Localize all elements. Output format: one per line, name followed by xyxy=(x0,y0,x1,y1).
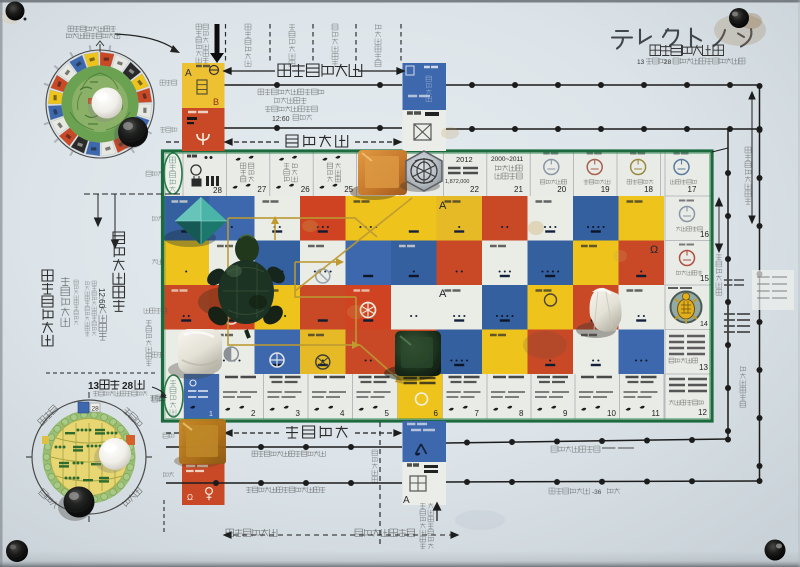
svg-text:2012: 2012 xyxy=(456,155,473,164)
svg-text:13: 13 xyxy=(699,363,708,372)
svg-text:Ω: Ω xyxy=(187,493,193,502)
svg-text:26: 26 xyxy=(301,185,310,194)
svg-text:2000~2011: 2000~2011 xyxy=(491,156,524,163)
svg-text:5: 5 xyxy=(385,409,390,418)
svg-text:A: A xyxy=(185,68,192,79)
svg-text:21: 21 xyxy=(514,185,523,194)
svg-text:15: 15 xyxy=(700,274,709,283)
svg-text:13: 13 xyxy=(637,59,645,66)
svg-text:12:60: 12:60 xyxy=(97,288,106,309)
svg-text:1: 1 xyxy=(209,411,213,418)
svg-text:-36: -36 xyxy=(592,489,602,496)
svg-text:4: 4 xyxy=(340,409,345,418)
svg-text:3: 3 xyxy=(296,409,301,418)
svg-text:11: 11 xyxy=(652,409,661,418)
svg-text:20: 20 xyxy=(557,185,566,194)
svg-text:12:60: 12:60 xyxy=(272,116,290,123)
svg-text:2: 2 xyxy=(251,409,256,418)
svg-text:A: A xyxy=(439,288,447,300)
svg-text:12: 12 xyxy=(698,408,707,417)
svg-text:28: 28 xyxy=(664,59,672,66)
svg-text:A: A xyxy=(439,200,447,212)
svg-text:28: 28 xyxy=(213,186,222,195)
svg-text:17: 17 xyxy=(688,185,697,194)
svg-text:A: A xyxy=(403,495,410,506)
svg-text:19: 19 xyxy=(601,185,610,194)
svg-text:13: 13 xyxy=(88,381,100,392)
svg-text:16: 16 xyxy=(700,230,709,239)
svg-text:Ω: Ω xyxy=(650,244,658,256)
svg-text:1,872,000: 1,872,000 xyxy=(445,179,469,185)
svg-text:27: 27 xyxy=(257,185,266,194)
svg-text:B: B xyxy=(213,97,219,107)
svg-text:28: 28 xyxy=(122,381,134,392)
svg-text:7: 7 xyxy=(475,409,480,418)
svg-text:6: 6 xyxy=(434,409,439,418)
svg-text:10: 10 xyxy=(607,409,616,418)
svg-text:18: 18 xyxy=(644,185,653,194)
svg-text:9: 9 xyxy=(563,409,568,418)
svg-text:22: 22 xyxy=(470,185,479,194)
svg-text:28: 28 xyxy=(92,406,100,413)
svg-text:14: 14 xyxy=(700,321,708,328)
svg-text:8: 8 xyxy=(519,409,524,418)
